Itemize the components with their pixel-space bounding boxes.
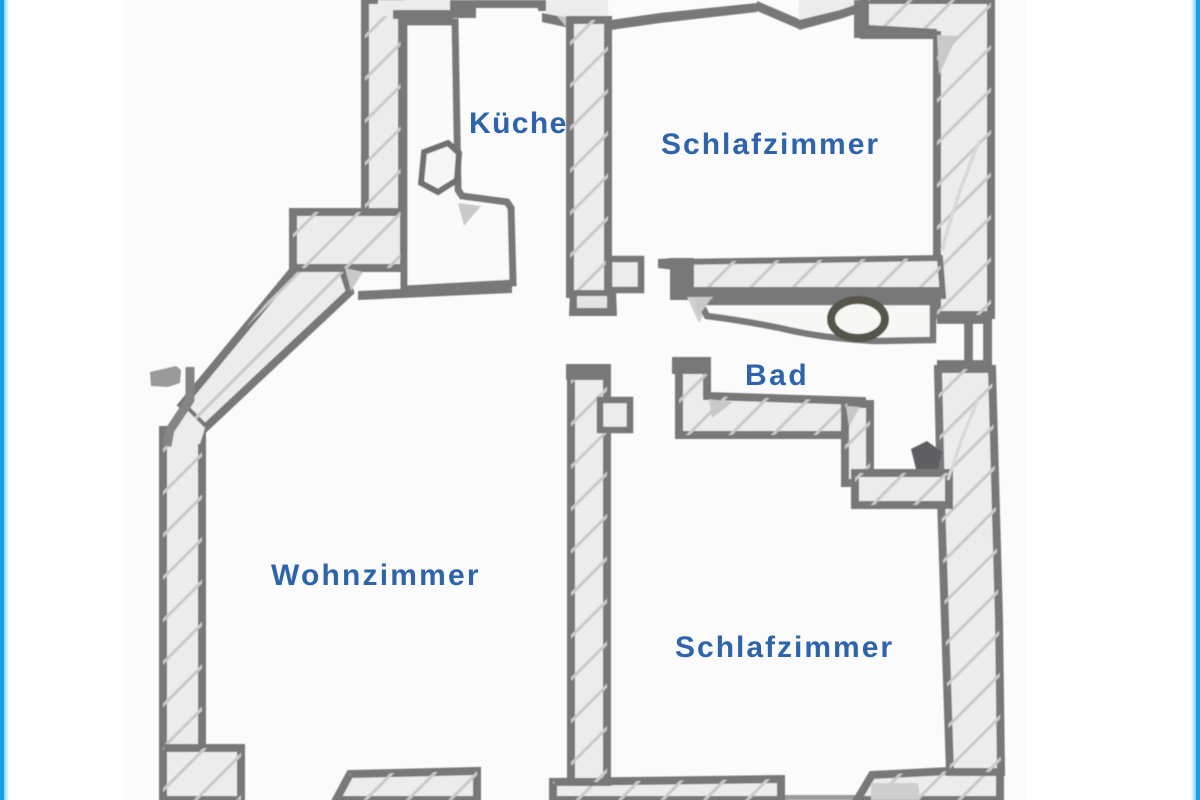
svg-text:Bad: Bad	[745, 359, 809, 392]
svg-text:Schlafzimmer: Schlafzimmer	[661, 128, 880, 161]
svg-text:Küche: Küche	[469, 107, 568, 140]
svg-text:Wohnzimmer: Wohnzimmer	[271, 559, 481, 592]
svg-text:Schlafzimmer: Schlafzimmer	[675, 631, 894, 664]
